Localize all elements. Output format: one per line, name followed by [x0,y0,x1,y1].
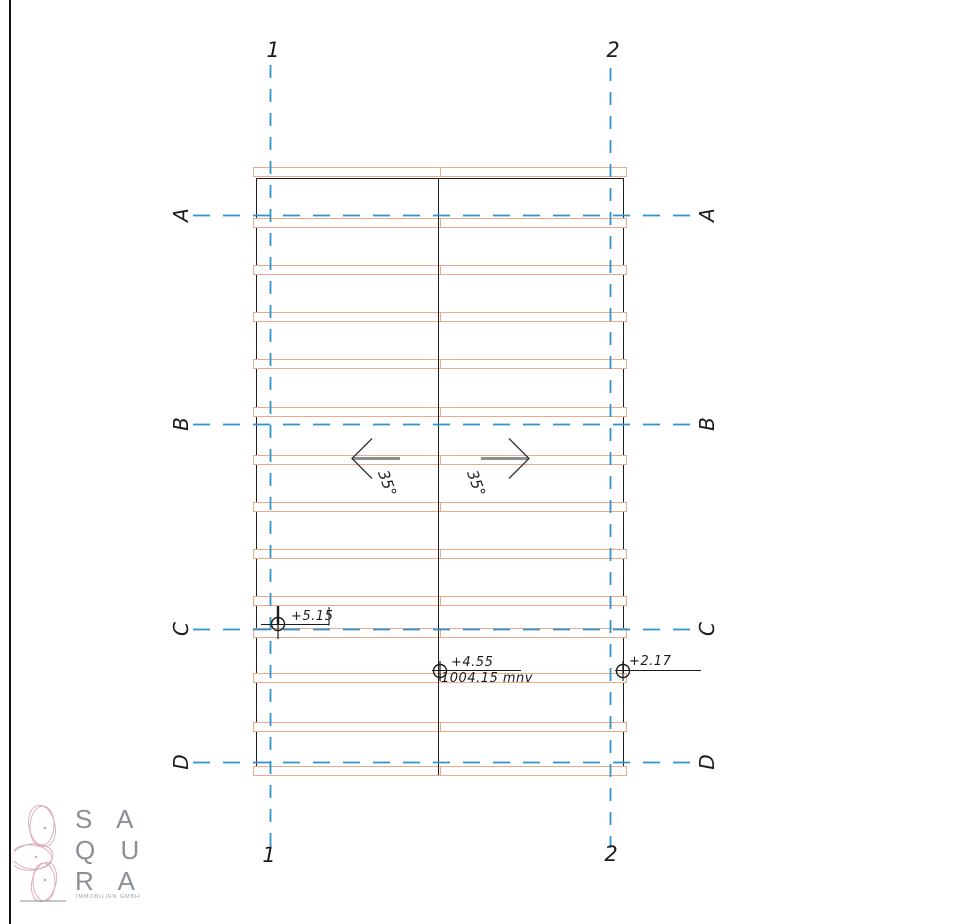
sakura-flower-icon [14,800,84,910]
logo-row-2: Q U [75,835,148,866]
roof-batten [253,722,627,732]
elevation-datum: 1004.15 mnv [441,671,533,686]
grid-label-c-left: C [170,616,192,642]
company-logo: S A Q U R A IMMOBILIEN GMBH [14,800,194,920]
roof-plan-drawing: 1 2 1 2 A B C D A B C D 35° 35° +5.15 +4… [0,0,972,924]
logo-row-1: S A [75,804,148,835]
roof-batten [253,359,627,369]
roof-batten [253,549,627,559]
roof-batten [253,455,627,465]
grid-label-d-left: D [170,749,192,775]
elevation-value-1: +5.15 [291,609,333,624]
roof-batten [253,628,627,638]
grid-label-2-bottom: 2 [598,842,624,866]
elevation-value-3: +2.17 [629,654,671,669]
roof-batten [253,766,627,776]
roof-batten [253,502,627,512]
grid-label-d-right: D [696,749,718,775]
logo-tagline: IMMOBILIEN GMBH [76,894,140,900]
grid-label-1-bottom: 1 [256,843,282,867]
grid-label-b-left: B [170,411,192,437]
roof-batten [253,218,627,228]
grid-label-b-right: B [696,411,718,437]
roof-batten [253,265,627,275]
roof-batten [253,673,627,683]
battens-layer [0,0,972,924]
elevation-value-2: +4.55 [451,655,493,670]
logo-wordmark: S A Q U R A [75,804,148,897]
logo-row-3: R A [75,866,148,897]
grid-label-a-left: A [170,202,192,228]
roof-batten [253,407,627,417]
grid-label-c-right: C [696,616,718,642]
roof-batten [253,167,627,177]
ridge-line [438,178,439,775]
grid-label-2-top: 2 [600,38,626,62]
roof-batten [253,596,627,606]
grid-label-1-top: 1 [260,38,286,62]
grid-label-a-right: A [696,202,718,228]
roof-batten [253,312,627,322]
